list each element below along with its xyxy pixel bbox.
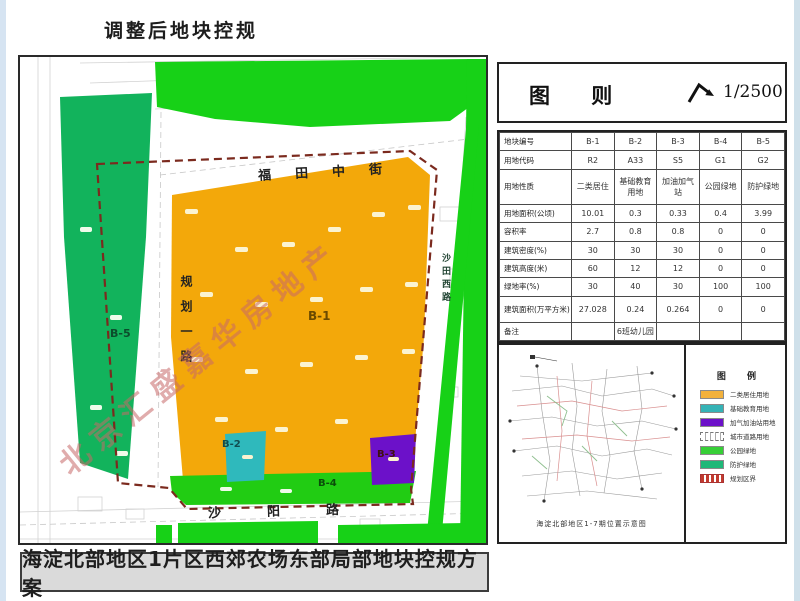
north-arrow-icon: [685, 79, 717, 107]
table-cell: G1: [699, 151, 742, 169]
table-cell: 0: [742, 296, 785, 322]
table-cell: B-3: [657, 133, 700, 151]
zoning-map: [20, 57, 486, 543]
page-edge-left: [0, 0, 6, 601]
legend-swatch-residential: [700, 390, 724, 399]
row-label: 用地性质: [500, 169, 572, 204]
row-label: 绿地率(%): [500, 278, 572, 296]
table-cell: 0: [742, 241, 785, 259]
table-cell: 27.028: [572, 296, 615, 322]
table-cell: B-5: [742, 133, 785, 151]
table-cell: 12: [657, 259, 700, 277]
row-label: 容积率: [500, 223, 572, 241]
legend-swatch-gas-station: [700, 418, 724, 427]
table-cell: 0.24: [614, 296, 657, 322]
table-cell: 2.7: [572, 223, 615, 241]
table-cell: [657, 322, 700, 340]
table-cell: 0.8: [657, 223, 700, 241]
plan-sheet-header: 图 则 1/2500: [497, 62, 787, 123]
table-cell: 防护绿地: [742, 169, 785, 204]
table-cell: G2: [742, 151, 785, 169]
row-label: 建筑面积(万平方米): [500, 296, 572, 322]
table-cell: 30: [657, 241, 700, 259]
table-cell: [699, 322, 742, 340]
table-cell: 0.33: [657, 204, 700, 222]
street-label-planning-road-1: 规划一路: [178, 275, 195, 375]
legend-item: 规划区界: [700, 474, 785, 482]
legend-swatch-boundary: [700, 474, 724, 483]
row-label: 用地代码: [500, 151, 572, 169]
legend-item: 二类居住用地: [700, 390, 785, 398]
map-scale: 1/2500: [723, 82, 783, 102]
table-cell: 30: [572, 278, 615, 296]
table-row: 建筑高度(米) 60 12 12 0 0: [500, 259, 785, 277]
table-row: 备注 6班幼儿园: [500, 322, 785, 340]
table-cell: 基础教育用地: [614, 169, 657, 204]
table-cell: 30: [657, 278, 700, 296]
table-cell: 12: [614, 259, 657, 277]
table-row: 用地代码 R2 A33 S5 G1 G2: [500, 151, 785, 169]
table-cell: 加油加气站: [657, 169, 700, 204]
planning-document-page: 调整后地块控规: [0, 0, 800, 601]
table-row: 用地性质 二类居住 基础教育用地 加油加气站 公园绿地 防护绿地: [500, 169, 785, 204]
table-cell: 0: [699, 223, 742, 241]
parcel-parameter-table: 地块编号 B-1 B-2 B-3 B-4 B-5 用地代码 R2 A33 S5 …: [497, 130, 787, 343]
table-cell: 3.99: [742, 204, 785, 222]
street-label-shatian-west: 沙田西路: [439, 253, 452, 305]
location-inset-map: 海淀北部地区1-7期位置示意图: [499, 345, 686, 542]
table-cell: 0: [742, 259, 785, 277]
row-label: 建筑高度(米): [500, 259, 572, 277]
table-cell: 100: [742, 278, 785, 296]
table-cell: S5: [657, 151, 700, 169]
table-cell: B-1: [572, 133, 615, 151]
table-cell: 10.01: [572, 204, 615, 222]
legend-swatch-park-green: [700, 446, 724, 455]
legend-item: 防护绿地: [700, 460, 785, 468]
table-cell: 公园绿地: [699, 169, 742, 204]
row-label: 建筑密度(%): [500, 241, 572, 259]
legend-item: 城市道路用地: [700, 432, 785, 440]
legend-swatch-education: [700, 404, 724, 413]
table-cell: 6班幼儿园: [614, 322, 657, 340]
table-cell: A33: [614, 151, 657, 169]
inset-caption: 海淀北部地区1-7期位置示意图: [499, 519, 684, 529]
page-title: 调整后地块控规: [104, 16, 258, 43]
table-cell: B-2: [614, 133, 657, 151]
parcel-label-b2: B-2: [222, 439, 241, 450]
row-label: 用地面积(公顷): [500, 204, 572, 222]
table-cell: 0.8: [614, 223, 657, 241]
table-cell: 0: [699, 241, 742, 259]
plan-name-banner: 海淀北部地区1片区西郊农场东部局部地块控规方案: [20, 552, 489, 592]
table-row: 容积率 2.7 0.8 0.8 0 0: [500, 223, 785, 241]
table-cell: 60: [572, 259, 615, 277]
table-cell: B-4: [699, 133, 742, 151]
table-cell: 30: [614, 241, 657, 259]
table-cell: 0: [699, 296, 742, 322]
table-row: 用地面积(公顷) 10.01 0.3 0.33 0.4 3.99: [500, 204, 785, 222]
table-row: 建筑密度(%) 30 30 30 0 0: [500, 241, 785, 259]
parcel-b1[interactable]: [171, 157, 430, 480]
table-row: 绿地率(%) 30 40 30 100 100: [500, 278, 785, 296]
table-cell: [742, 322, 785, 340]
table-cell: 30: [572, 241, 615, 259]
table-row: 地块编号 B-1 B-2 B-3 B-4 B-5: [500, 133, 785, 151]
table-cell: 0.4: [699, 204, 742, 222]
legend-title: 图 例: [688, 369, 785, 382]
parcel-label-b1: B-1: [308, 309, 330, 323]
table-cell: 40: [614, 278, 657, 296]
inset-and-legend-box: 海淀北部地区1-7期位置示意图 图 例 二类居住用地 基础教育用地 加气加油站用…: [497, 343, 787, 544]
row-label: 地块编号: [500, 133, 572, 151]
table-cell: R2: [572, 151, 615, 169]
legend: 图 例 二类居住用地 基础教育用地 加气加油站用地 城市道路用地 公园绿地: [688, 345, 785, 542]
road-network-inset: [502, 351, 682, 511]
table-cell: 0: [699, 259, 742, 277]
legend-swatch-protective-green: [700, 460, 724, 469]
legend-item: 公园绿地: [700, 446, 785, 454]
plan-sheet-title: 图 则: [529, 80, 629, 110]
legend-item: 加气加油站用地: [700, 418, 785, 426]
legend-swatch-road: [700, 432, 724, 441]
table-cell: 0.3: [614, 204, 657, 222]
legend-item: 基础教育用地: [700, 404, 785, 412]
table-cell: 0: [742, 223, 785, 241]
table-cell: 0.264: [657, 296, 700, 322]
row-label: 备注: [500, 322, 572, 340]
table-cell: [572, 322, 615, 340]
parcel-label-b4: B-4: [318, 478, 337, 489]
zoning-map-panel: 福田中街 规划一路 沙田西路 沙阳路 B-1 B-2 B-3 B-4 B-5 北…: [18, 55, 488, 545]
parcel-label-b5: B-5: [110, 327, 131, 340]
table-cell: 100: [699, 278, 742, 296]
parcel-label-b3: B-3: [377, 449, 396, 460]
table-row: 建筑面积(万平方米) 27.028 0.24 0.264 0 0: [500, 296, 785, 322]
page-edge-right: [794, 0, 800, 601]
table-cell: 二类居住: [572, 169, 615, 204]
